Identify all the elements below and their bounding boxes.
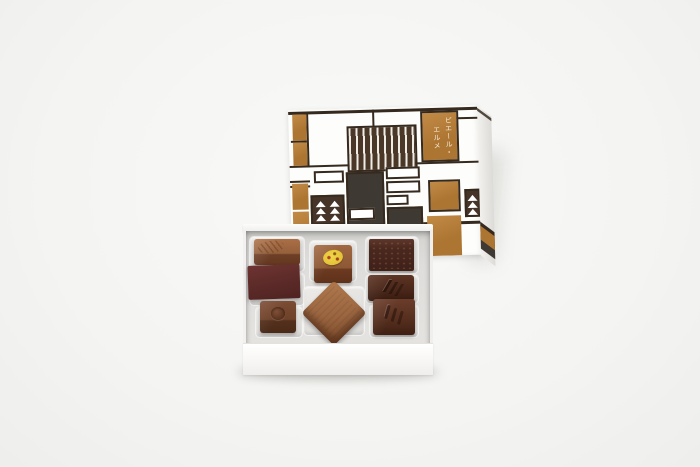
- lid-pattern-block: [468, 202, 478, 208]
- product-photo: ピエール・ エルメ: [0, 0, 700, 467]
- tray: [246, 231, 430, 345]
- lid-pattern-block: [456, 117, 478, 120]
- lid-pattern-block: [316, 201, 326, 207]
- open-box: [243, 224, 433, 374]
- fir-tree-icon: [466, 194, 479, 215]
- brand-text-column: ピエール・: [441, 116, 454, 156]
- lid-pattern-block: [386, 180, 420, 193]
- lid-pattern-block: [349, 208, 375, 221]
- fir-tree-icon: [315, 200, 328, 221]
- lid-pattern-block: [316, 215, 326, 221]
- chocolate-milk-rect-dimple: [260, 301, 296, 333]
- chocolate-dark-claw: [373, 299, 415, 335]
- fir-tree-icon: [329, 200, 342, 221]
- stripe-panel: [346, 124, 417, 172]
- lid-pattern-block: [467, 195, 477, 201]
- lid-pattern-block: [292, 183, 309, 209]
- chocolate-dark-matte-slab: [247, 264, 300, 300]
- lid-pattern-block: [314, 170, 344, 183]
- lid-pattern-block: [316, 208, 326, 214]
- chocolate-milk-square-yellow-disc: [314, 245, 352, 283]
- lid-pattern-block: [386, 195, 408, 206]
- lid-pattern-block: [428, 179, 461, 212]
- lid-pattern-block: [330, 208, 340, 214]
- lid-pattern-block: [386, 166, 420, 179]
- chocolate-dark-chevron: [368, 275, 414, 301]
- lid-pattern-block: [330, 201, 340, 207]
- chocolate-dark-matte-brownie: [369, 239, 414, 271]
- lid-pattern-block: [330, 215, 340, 221]
- lid-pattern-block: [293, 142, 308, 165]
- box-front-wall: [243, 343, 433, 375]
- chocolate-milk-square-comb: [254, 239, 300, 265]
- lid-pattern-block: [292, 114, 307, 140]
- brand-text: ピエール・ エルメ: [429, 116, 454, 157]
- brand-text-column: エルメ: [430, 126, 443, 157]
- lid-pattern-block: [468, 209, 478, 215]
- brand-panel: ピエール・ エルメ: [420, 110, 459, 162]
- fir-tree-panel: [310, 194, 345, 225]
